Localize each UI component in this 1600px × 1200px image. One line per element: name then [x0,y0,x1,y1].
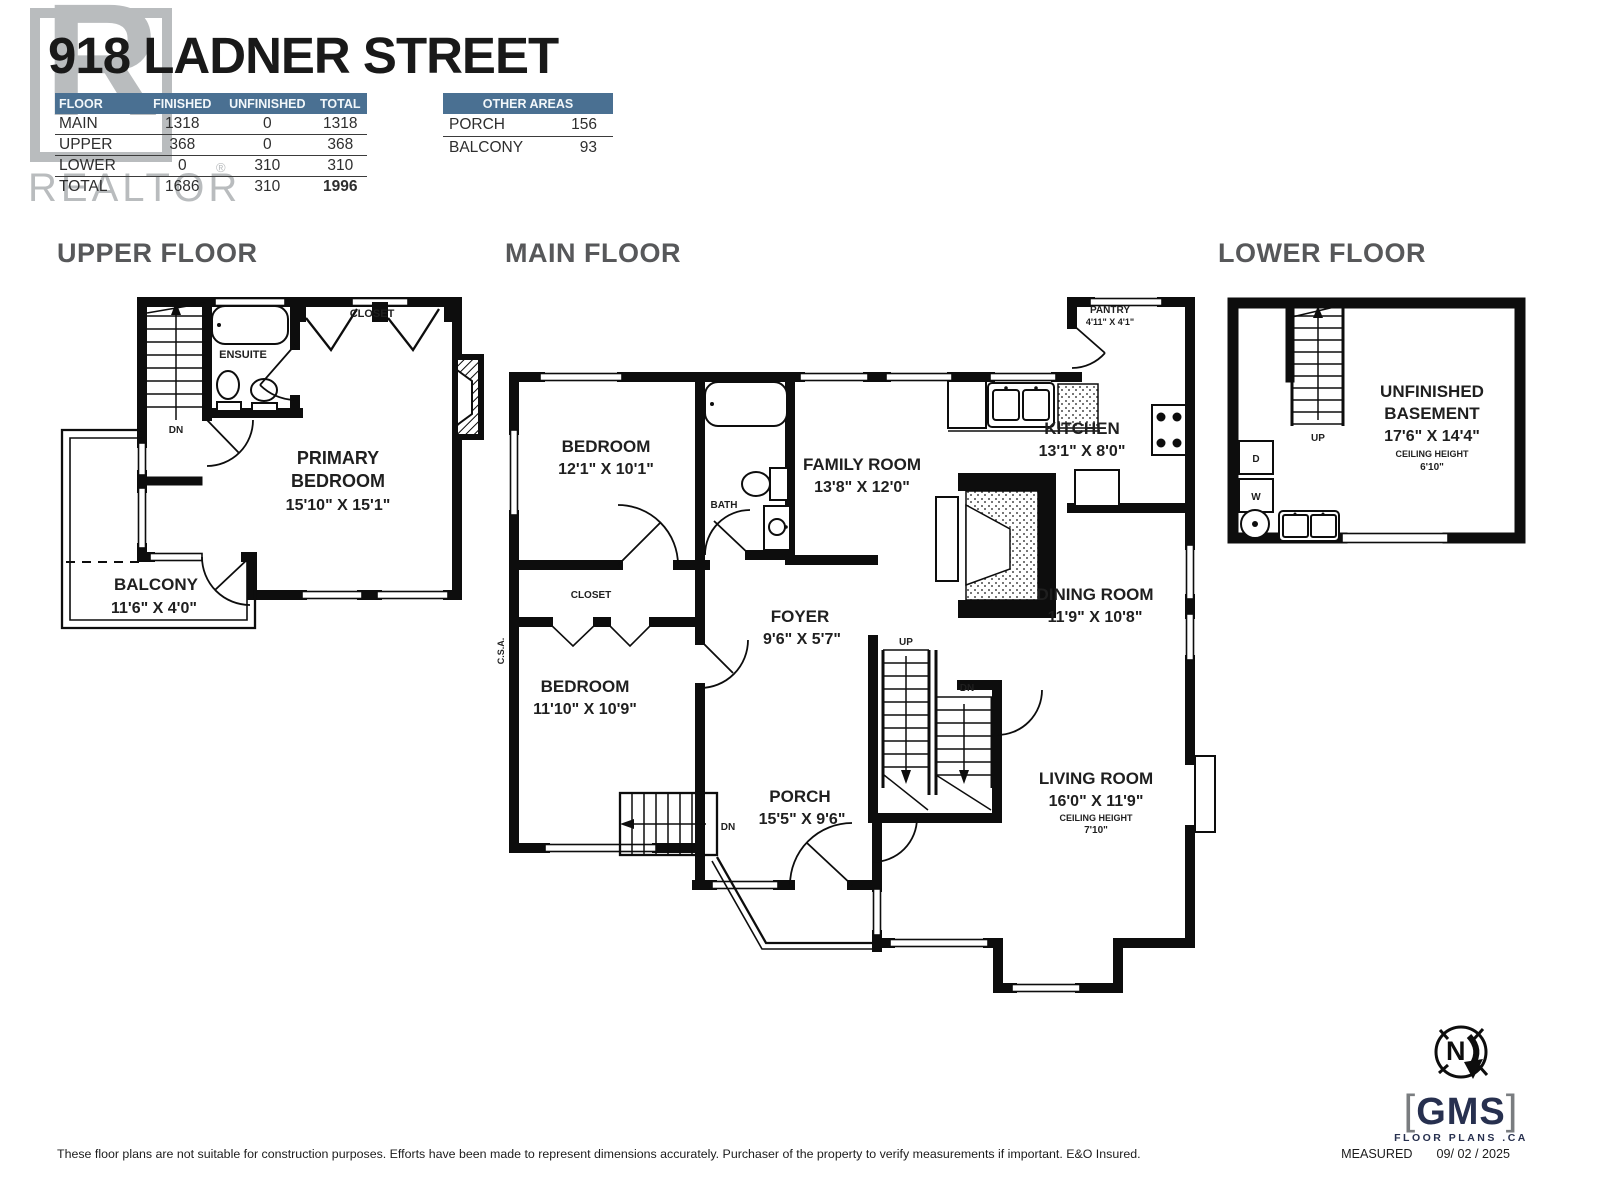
svg-text:16'0" X 11'9": 16'0" X 11'9" [1049,793,1144,810]
cell: 368 [144,135,222,156]
svg-text:BEDROOM: BEDROOM [541,677,630,696]
svg-text:DN: DN [169,425,183,436]
svg-text:LIVING ROOM: LIVING ROOM [1039,769,1153,788]
svg-text:11'10" X 10'9": 11'10" X 10'9" [533,701,637,718]
svg-text:CLOSET: CLOSET [571,590,612,601]
svg-text:DN: DN [960,683,974,694]
svg-text:PORCH: PORCH [769,787,830,806]
table-row-total: TOTAL 1686 310 1996 [55,177,367,198]
svg-text:FAMILY ROOM: FAMILY ROOM [803,455,921,474]
cell: 0 [221,114,313,135]
svg-text:UNFINISHED: UNFINISHED [1380,382,1484,401]
col-total: TOTAL [314,93,367,114]
svg-text:UP: UP [1311,433,1325,444]
table-row: UPPER 368 0 368 [55,135,367,156]
compass-icon: N [1423,1016,1499,1092]
cell: TOTAL [55,177,144,198]
stove-icon [1152,405,1186,455]
laundry-tub-icon [1241,510,1269,538]
cell: 368 [314,135,367,156]
double-sink-icon [1279,511,1339,541]
svg-text:DN: DN [721,822,735,833]
fireplace-icon [455,357,481,437]
svg-text:11'9" X 10'8": 11'9" X 10'8" [1048,609,1143,626]
svg-text:PANTRY: PANTRY [1090,305,1130,316]
svg-text:12'1" X 10'1": 12'1" X 10'1" [558,461,654,478]
upper-stairs [147,302,205,420]
svg-text:CLOSET: CLOSET [350,308,395,320]
gms-tagline: FLOOR PLANS .CA [1388,1132,1534,1144]
cell: LOWER [55,156,144,177]
area-table: FLOOR FINISHED UNFINISHED TOTAL MAIN 131… [55,93,367,197]
svg-text:ENSUITE: ENSUITE [219,349,267,361]
col-finished: FINISHED [144,93,222,114]
svg-text:CEILING HEIGHT: CEILING HEIGHT [1059,813,1133,823]
table-row: BALCONY 93 [443,137,613,160]
cell: 310 [314,156,367,177]
measured-date: MEASURED09/ 02 / 2025 [1330,1147,1510,1161]
svg-text:4'11" X 4'1": 4'11" X 4'1" [1086,317,1134,327]
svg-text:BEDROOM: BEDROOM [291,471,385,491]
svg-text:D: D [1252,454,1259,465]
svg-text:FOYER: FOYER [771,607,830,626]
table-row: MAIN 1318 0 1318 [55,114,367,135]
gms-logo: N [GMS] FLOOR PLANS .CA [1388,1016,1534,1144]
svg-text:CEILING HEIGHT: CEILING HEIGHT [1395,449,1469,459]
cell: PORCH [443,114,554,137]
main-floor-plan: BEDROOM 12'1" X 10'1" BATH CLOSET BEDROO… [480,275,1220,1015]
svg-text:17'6" X 14'4": 17'6" X 14'4" [1384,428,1480,445]
bracket: ] [1506,1086,1519,1133]
cell: MAIN [55,114,144,135]
svg-text:13'1" X 8'0": 13'1" X 8'0" [1039,443,1126,460]
other-areas-title: OTHER AREAS [443,93,613,114]
table-row: PORCH 156 [443,114,613,137]
cell: 1996 [314,177,367,198]
cell: 0 [221,135,313,156]
svg-text:KITCHEN: KITCHEN [1044,419,1120,438]
svg-text:6'10": 6'10" [1420,462,1444,473]
col-floor: FLOOR [55,93,144,114]
bracket: [ [1404,1086,1417,1133]
svg-text:BEDROOM: BEDROOM [562,437,651,456]
central-stairs [883,650,992,810]
toilet-icon [742,468,788,500]
svg-text:C.S.A.: C.S.A. [496,638,506,665]
main-floor-heading: MAIN FLOOR [505,238,681,269]
floor-plan-page: R REALTOR ® 918 LADNER STREET FLOOR FINI… [0,0,1600,1200]
bathtub-icon [212,306,288,344]
svg-text:7'10": 7'10" [1084,825,1108,836]
upper-floor-heading: UPPER FLOOR [57,238,258,269]
cell: 310 [221,177,313,198]
cell: 310 [221,156,313,177]
cell: UPPER [55,135,144,156]
vanity-icon [764,506,790,550]
cell: 1318 [144,114,222,135]
col-unfinished: UNFINISHED [221,93,313,114]
basement-window [1342,534,1448,543]
svg-text:N: N [1446,1036,1466,1066]
hearth [936,497,958,581]
svg-text:11'6" X 4'0": 11'6" X 4'0" [111,600,197,617]
bathtub-icon [705,382,787,426]
svg-text:BASEMENT: BASEMENT [1384,404,1480,423]
svg-text:BATH: BATH [710,500,737,511]
area-table-header: FLOOR FINISHED UNFINISHED TOTAL [55,93,367,114]
gms-name: GMS [1416,1091,1506,1133]
toilet-icon [217,371,241,411]
window-seat [1195,756,1215,832]
svg-text:DINING ROOM: DINING ROOM [1036,585,1153,604]
lower-labels: UP D W UNFINISHED BASEMENT 17'6" X 14'4"… [1251,382,1484,503]
svg-text:13'8" X 12'0": 13'8" X 12'0" [814,479,910,496]
cell: 0 [144,156,222,177]
svg-text:PRIMARY: PRIMARY [297,448,379,468]
gms-wordmark: [GMS] [1388,1092,1534,1130]
measured-value: 09/ 02 / 2025 [1436,1147,1510,1161]
cell: 156 [554,114,613,137]
counter-desk [1075,470,1119,506]
other-areas-header: OTHER AREAS [443,93,613,114]
disclaimer-text: These floor plans are not suitable for c… [57,1147,1141,1161]
svg-text:W: W [1251,492,1261,503]
cell: 1686 [144,177,222,198]
page-title: 918 LADNER STREET [48,26,558,85]
other-areas-table: OTHER AREAS PORCH 156 BALCONY 93 [443,93,613,159]
lower-floor-heading: LOWER FLOOR [1218,238,1426,269]
cell: 1318 [314,114,367,135]
measured-label: MEASURED [1341,1147,1412,1161]
lower-stairs [1292,305,1343,426]
svg-text:9'6" X 5'7": 9'6" X 5'7" [763,631,841,648]
table-row: LOWER 0 310 310 [55,156,367,177]
porch-outline [712,857,873,949]
svg-text:BALCONY: BALCONY [114,575,199,594]
svg-text:UP: UP [899,637,913,648]
lower-floor-plan: UP D W UNFINISHED BASEMENT 17'6" X 14'4"… [1205,285,1545,565]
cell: 93 [554,137,613,160]
fridge-icon [948,381,986,428]
svg-text:15'5" X 9'6": 15'5" X 9'6" [759,811,846,828]
svg-text:15'10" X 15'1": 15'10" X 15'1" [286,497,391,514]
cell: BALCONY [443,137,554,160]
upper-floor-plan: ENSUITE CLOSET DN PRIMARY BEDROOM 15'10"… [40,280,490,640]
